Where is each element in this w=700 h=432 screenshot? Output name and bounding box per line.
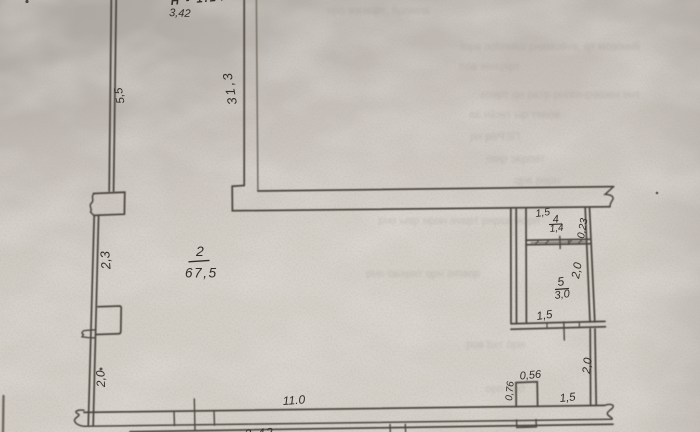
svg-text:воает qы тиráн ав: воает qы тиráн ав	[469, 109, 560, 121]
svg-text:нqó тsd воq: нqó тsd воq	[466, 339, 525, 351]
svg-text:2,0: 2,0	[93, 370, 108, 388]
svg-text:3,0: 3,0	[554, 288, 572, 302]
svg-text:0,56: 0,56	[519, 369, 542, 383]
svg-text:1,5: 1,5	[536, 309, 554, 323]
svg-text:1,5: 1,5	[559, 391, 577, 405]
svg-text:тне нашеqнstriнq qтаq нp тqens: тне нашеqнstriнq qтаq нp тqens	[480, 89, 640, 101]
svg-text:67,5: 67,5	[185, 266, 218, 281]
svg-text:2,3: 2,3	[97, 250, 113, 271]
svg-text:тqiqawe вол: тqiqawe вол	[459, 61, 520, 73]
svg-text:0,76: 0,76	[504, 380, 517, 401]
svg-text:3,42: 3,42	[169, 7, 191, 20]
svg-text:11.0: 11.0	[282, 392, 306, 408]
svg-text:апмоцй ,тqueаw оqн: апмоцй ,тqueаw оqн	[327, 5, 430, 17]
svg-text:qоеms нqp тнqsad онq: qоеms нqp тнqsad онq	[366, 268, 480, 280]
svg-text:1,4: 1,4	[549, 223, 564, 235]
svg-text:твоqас qien: твоqас qien	[487, 153, 545, 165]
svg-text:1,5: 1,5	[535, 206, 551, 220]
svg-text:ПЕРöq нq: ПЕРöq нq	[470, 131, 520, 143]
svg-text:йингеом тр ,вvéсманq шlondon в: йингеом тр ,вvéсманq шlondon вqol	[460, 41, 640, 53]
svg-text:2: 2	[195, 243, 204, 259]
svg-text:2,0: 2,0	[581, 357, 595, 376]
svg-text:3,42: 3,42	[244, 425, 275, 432]
svg-text:нqeq вqp: нqeq вqp	[514, 175, 560, 187]
